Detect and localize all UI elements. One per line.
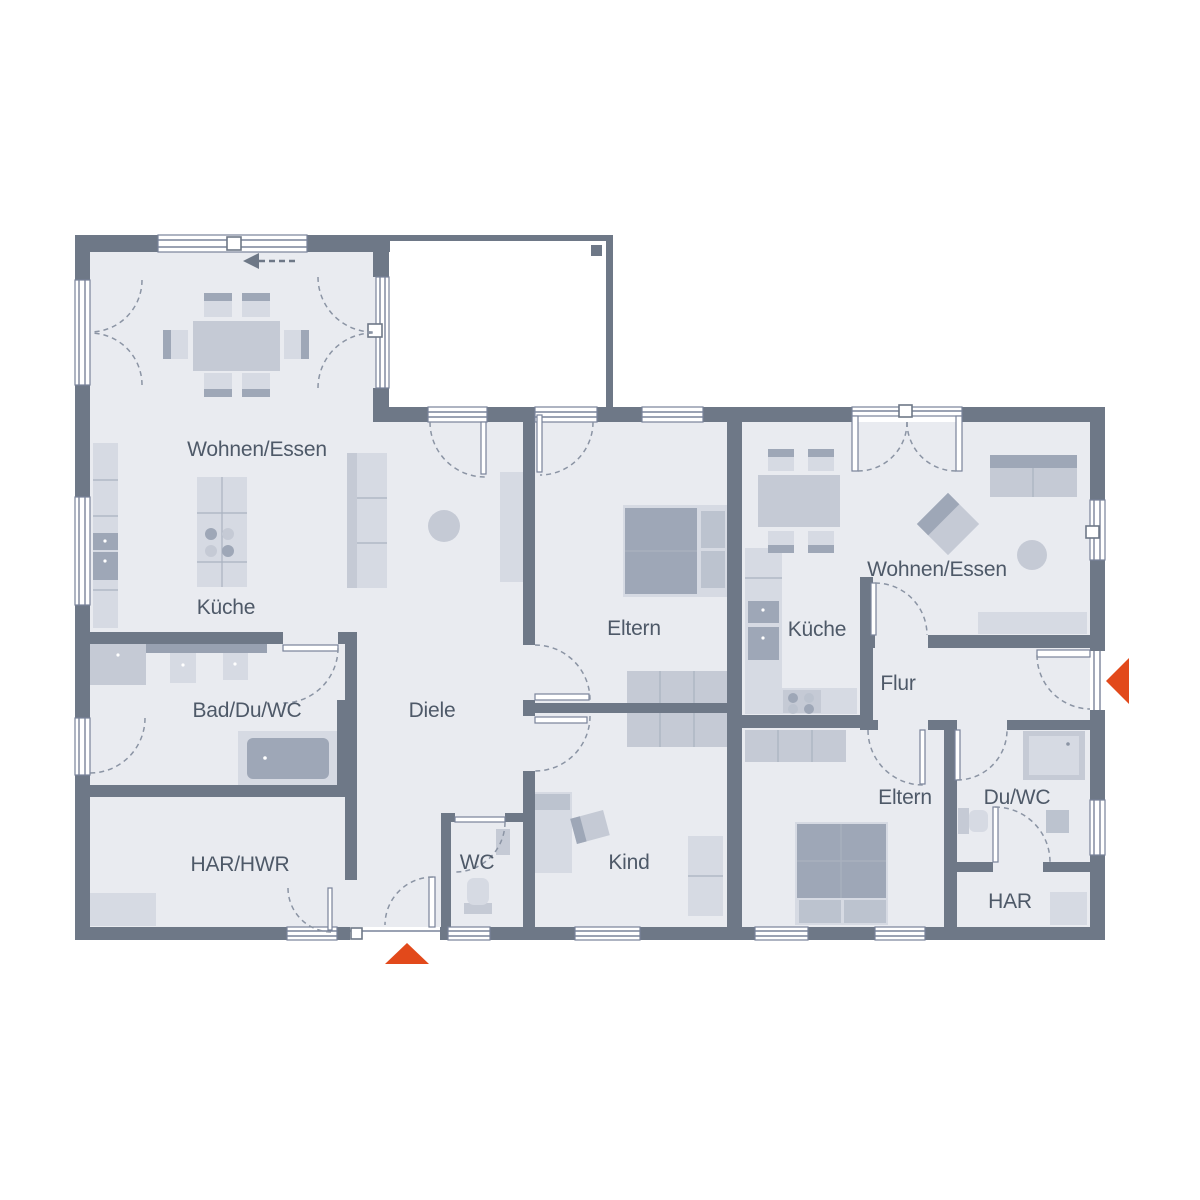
entrance-arrow-bottom-icon [385, 943, 429, 964]
window-right-lower [1090, 800, 1105, 855]
sideboard-left [500, 472, 523, 582]
entrance-arrow-right-icon [1106, 658, 1129, 704]
cabinet-left [347, 453, 387, 588]
room-label-har-right: HAR [988, 890, 1032, 913]
plant-left [428, 510, 460, 542]
room-label-du-wc-right: Du/WC [984, 786, 1051, 809]
entry-opening-bottom [350, 927, 440, 940]
room-label-wohnen-essen-right: Wohnen/Essen [867, 558, 1007, 581]
floor-plan: Wohnen/Essen Küche Bad/Du/WC Diele HAR/H… [0, 0, 1200, 1200]
floor-plan-canvas: Wohnen/Essen Küche Bad/Du/WC Diele HAR/H… [0, 0, 1200, 1200]
room-label-wohnen-essen-left: Wohnen/Essen [187, 438, 327, 461]
room-label-eltern-right: Eltern [878, 786, 932, 809]
bed-parents-middle [623, 505, 727, 597]
window-eltern-middle [642, 407, 703, 422]
entry-opening-right [1090, 651, 1105, 710]
window-left-bath [75, 718, 90, 775]
storage-har-hwr [90, 893, 156, 926]
terrace-door-sill-diele [428, 407, 487, 422]
terrace-door-sill-eltern [535, 407, 597, 422]
room-label-diele: Diele [409, 699, 456, 722]
window-left-upper [75, 280, 90, 385]
room-label-har-hwr: HAR/HWR [191, 853, 290, 876]
room-label-eltern-middle: Eltern [607, 617, 661, 640]
window-left-middle [75, 497, 90, 605]
room-label-kueche-left: Küche [197, 596, 256, 619]
terrace [389, 241, 606, 407]
room-label-bad-du-wc: Bad/Du/WC [192, 699, 301, 722]
room-label-kind: Kind [608, 851, 649, 874]
column-marker-icon [591, 245, 602, 256]
room-label-flur: Flur [880, 672, 916, 695]
storage-har-right [1050, 892, 1087, 925]
room-label-kueche-right: Küche [788, 618, 847, 641]
window-top-left [158, 235, 307, 252]
room-label-wc: WC [460, 851, 495, 874]
